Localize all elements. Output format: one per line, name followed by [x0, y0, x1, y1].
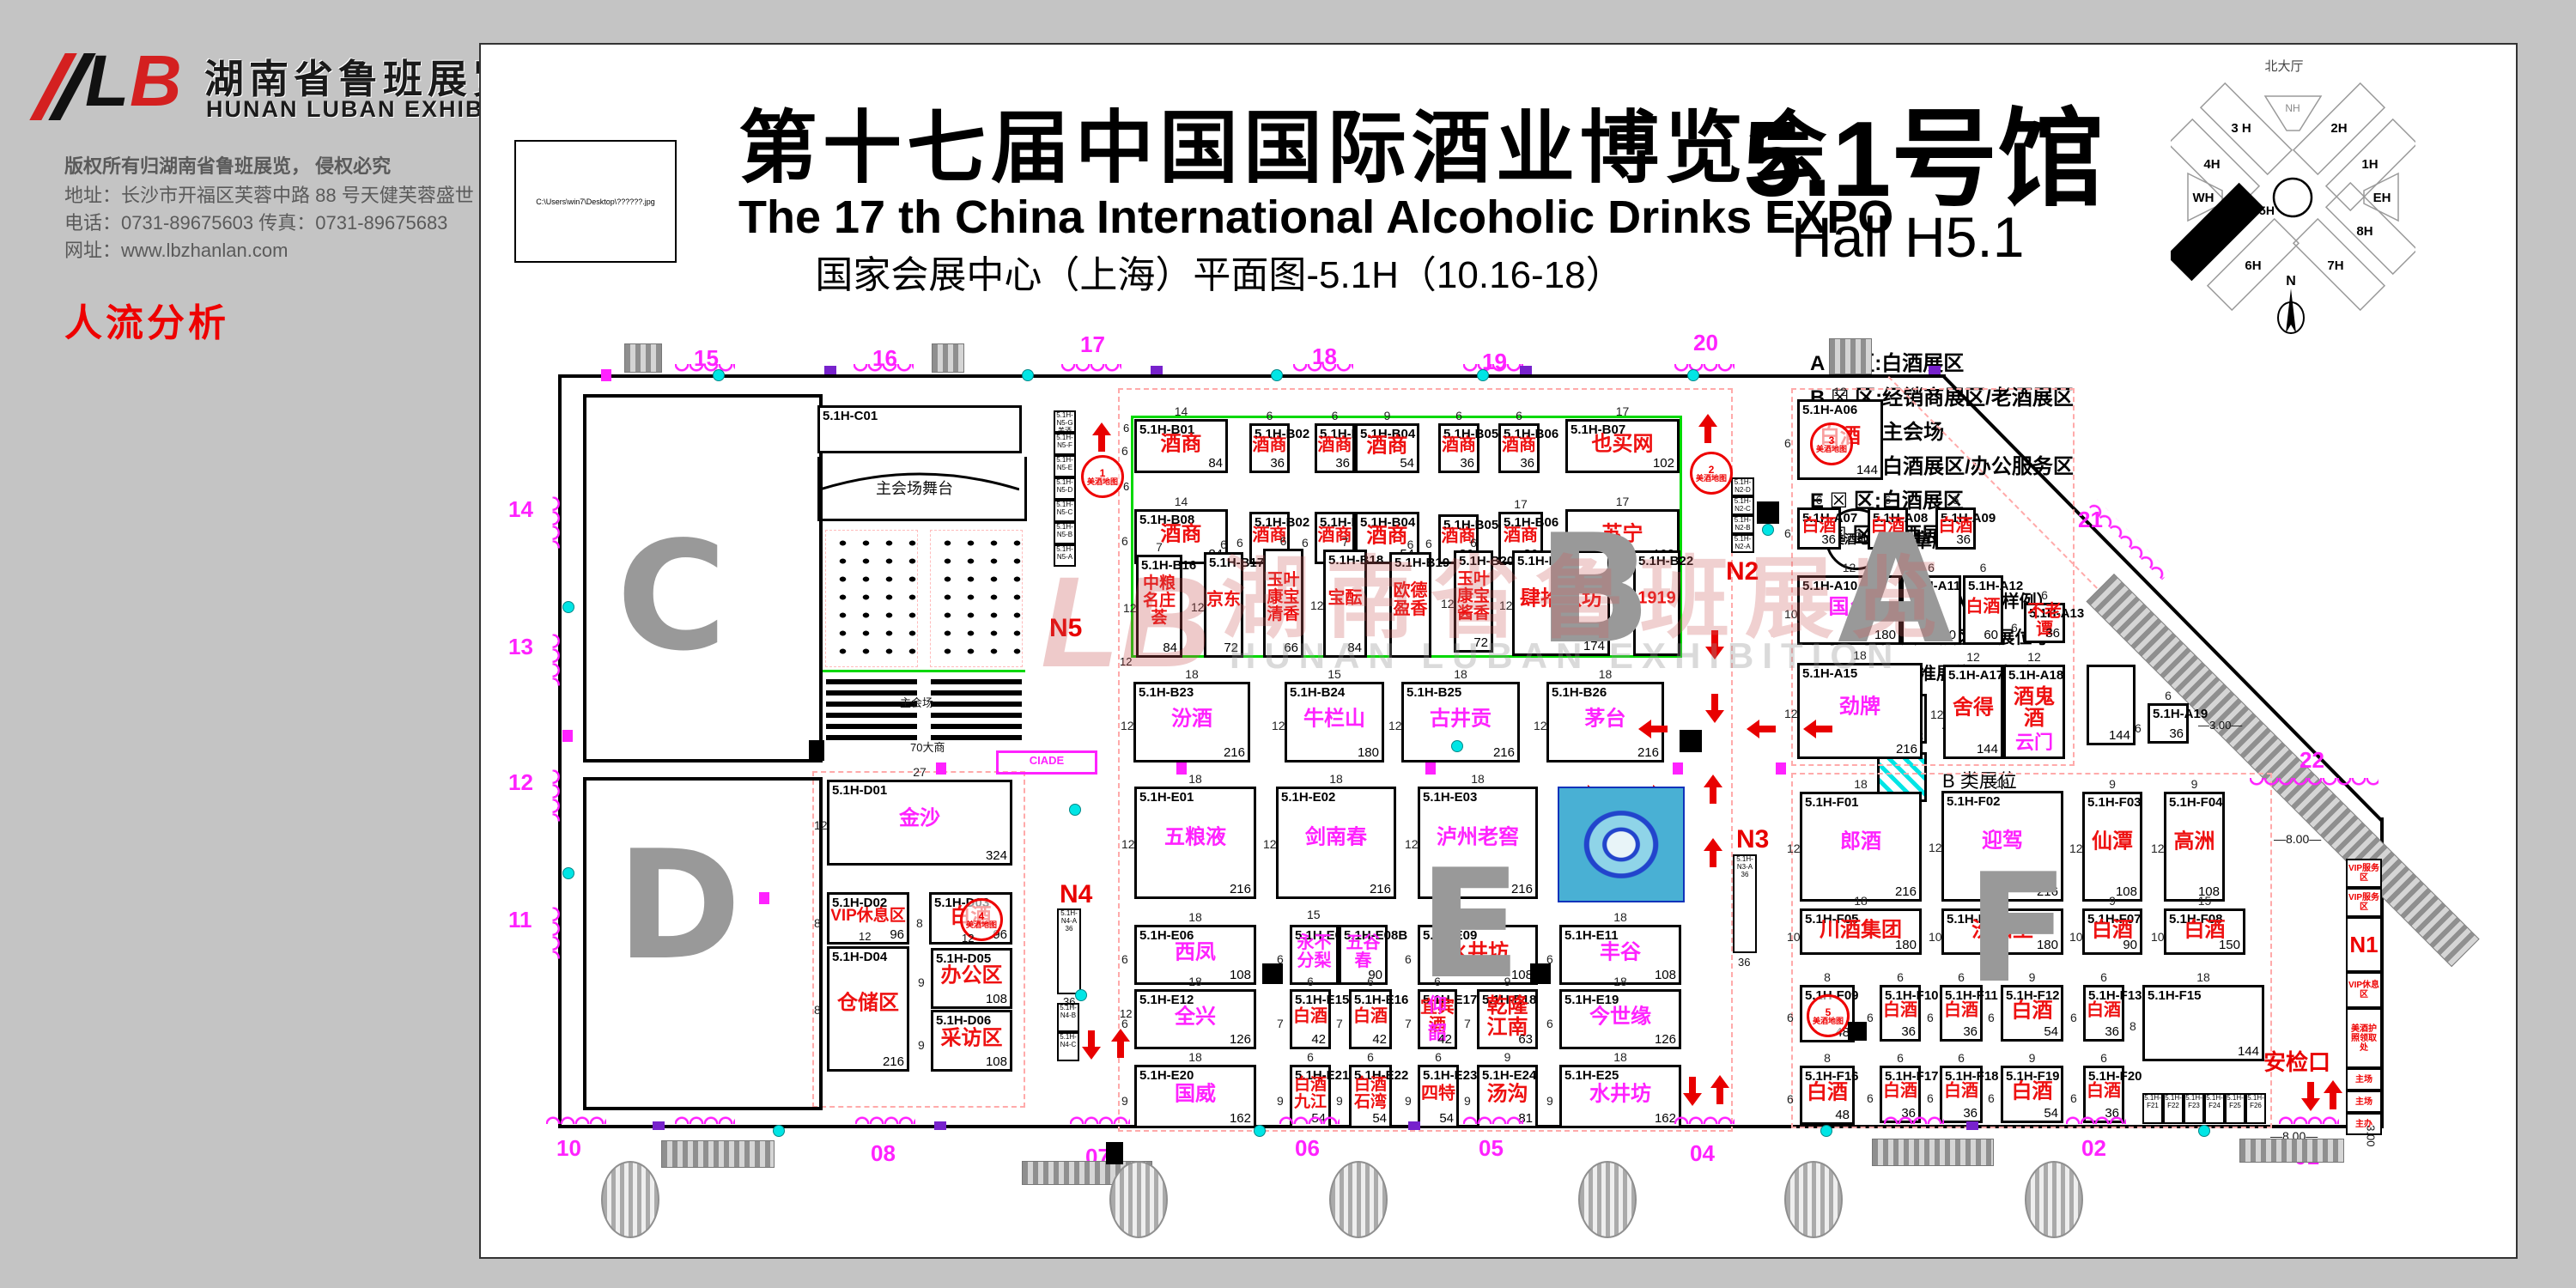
- label-13: 13: [508, 635, 533, 659]
- booth-name: 酒鬼酒: [2006, 686, 2063, 729]
- standard-booth-cell: 5.1H-N2-C: [1731, 496, 1754, 515]
- booth-dim-left: 7: [1277, 1017, 1284, 1030]
- booth-5.1H-B17: 5.1H-B17京东72612: [1204, 552, 1243, 658]
- facility-oval: [2025, 1161, 2083, 1238]
- hall-5h-label: 5H: [2259, 204, 2275, 217]
- arrow-head: [2324, 1080, 2342, 1093]
- booth-dim-top: 6: [1206, 538, 1241, 551]
- zone-letter-A: A: [1838, 515, 1953, 665]
- booth-5.1H-D05: 5.1H-D05办公区1089: [931, 948, 1012, 1009]
- booth-id: 5.1H-E03: [1423, 790, 1477, 805]
- booth-dim-left: 12: [2069, 841, 2083, 855]
- booth-name: 白酒: [1882, 1002, 1918, 1020]
- label-N5: N5: [1049, 615, 1082, 642]
- booth-dim-top: 6: [1266, 534, 1301, 548]
- booth-dim-left: 6: [1787, 1011, 1794, 1024]
- booth-name: 劲牌: [1800, 696, 1920, 717]
- booth-area: 36: [1963, 1106, 1978, 1121]
- booth-name: 玉叶康宝酱香: [1456, 571, 1491, 623]
- booth-dim-top: 14: [1137, 404, 1225, 418]
- gate-arcs-top: [854, 364, 914, 375]
- nh-label: NH: [2285, 102, 2300, 114]
- label-N4: N4: [1060, 881, 1092, 908]
- hall-6h-label: 6H: [2245, 258, 2261, 273]
- booth-dim-left: 12: [2151, 841, 2165, 855]
- arrow-shaft: [1815, 726, 1832, 732]
- booth-name: 白酒: [1882, 1083, 1918, 1101]
- label-05: 05: [1479, 1137, 1504, 1160]
- booth-name: 剑南春: [1279, 827, 1394, 848]
- arrow-head: [1082, 1047, 1101, 1060]
- booth-5.1H-F19: 5.1H-F19白酒5496: [2001, 1066, 2063, 1123]
- marker-dot-cyan: [1477, 369, 1489, 381]
- arrow-shaft: [1711, 630, 1718, 647]
- booth-area: 216: [1230, 882, 1251, 896]
- booth-dim-top: 18: [1562, 975, 1679, 988]
- flow-arrow-up: [1710, 1075, 1729, 1106]
- gate-arcs-top: [1674, 364, 1735, 375]
- booth-name: 白酒: [1942, 1083, 1980, 1101]
- booth-dim-left: 9: [1277, 1094, 1284, 1108]
- booth-dim-left: 12: [1121, 719, 1134, 732]
- label-12: 12: [1120, 656, 1132, 668]
- booth-5.1H-E22: 5.1H-E22白酒 石湾5469: [1349, 1065, 1392, 1128]
- marker-purple: [1151, 366, 1163, 374]
- booth-dim-top: 8: [1802, 970, 1852, 984]
- booth-dim-top: 6: [1942, 1051, 1980, 1065]
- label-3.00: 3.00: [2365, 1125, 2377, 1146]
- booth-id: 5.1H-C01: [823, 409, 878, 423]
- booth-dim-left: 8: [814, 1003, 821, 1017]
- standard-booth-cell: 5.1H-F24: [2204, 1093, 2225, 1124]
- arrow-shaft: [1711, 694, 1718, 711]
- address-line: 地址：长沙市开福区芙蓉中路 88 号天健芙蓉盛世 2301 室: [64, 180, 545, 208]
- booth-area: 216: [1493, 745, 1515, 760]
- facility-block: [1829, 338, 1872, 374]
- booth-5.1H-A19: 5.1H-A193666: [2148, 703, 2189, 744]
- booth-id: 5.1H-A12: [1968, 579, 2023, 593]
- booth-area: 216: [1224, 745, 1245, 760]
- booth-dim-top: 15: [2166, 894, 2243, 908]
- hall-eh-label: EH: [2373, 191, 2391, 205]
- booth-id: 5.1H-F02: [1947, 794, 2001, 809]
- hall-2h-label: 2H: [2330, 121, 2347, 136]
- zone-letter-F: F: [1966, 854, 2069, 1005]
- booth-area: 102: [1653, 456, 1674, 471]
- booth-dim-left: 9: [1464, 1094, 1471, 1108]
- label-04: 04: [1690, 1142, 1715, 1165]
- booth-5.1H-E16: 5.1H-E16白酒4267: [1349, 989, 1392, 1049]
- booth-dim-top: 18: [1137, 1050, 1254, 1064]
- standard-booth-cell: 5.1H-N4-A 36: [1057, 908, 1081, 994]
- facility-block: [624, 343, 662, 373]
- booth-id: 5.1H-E24: [1482, 1068, 1536, 1083]
- booth-name: 办公区: [933, 965, 1010, 987]
- booth-dim-top: 6: [1292, 1050, 1328, 1064]
- gate-arcs-left: [553, 770, 564, 822]
- copyright-line: 版权所有归湖南省鲁班展览， 侵权必究: [64, 151, 391, 179]
- arrow-head: [1111, 1029, 1130, 1042]
- booth-id: 5.1H-B24: [1290, 685, 1345, 700]
- marker-dot-cyan: [562, 601, 574, 613]
- booth-dim-left: 10: [1784, 607, 1798, 621]
- flow-arrow-left: [1803, 720, 1834, 738]
- booth-dim-top: 6: [2086, 1051, 2122, 1065]
- flow-arrow-down: [1683, 1075, 1702, 1106]
- booth-area: 126: [1230, 1032, 1251, 1047]
- north-hall-label: 北大厅: [2264, 59, 2303, 74]
- booth-dim-left: 12: [1388, 719, 1402, 732]
- booth-id: 5.1H-E02: [1281, 790, 1335, 805]
- booth-5.1H-B01: 5.1H-B01酒商84146: [1134, 419, 1228, 473]
- booth-id: 5.1H-F03: [2087, 795, 2142, 810]
- booth-id: 5.1H-E23: [1423, 1068, 1477, 1083]
- booth-5.1H-B19: 5.1H-B19欧德盈香6: [1389, 552, 1431, 658]
- marker-dot-cyan: [1254, 1125, 1266, 1137]
- booth-5.1H-F03: 5.1H-F03仙潭108912: [2082, 792, 2142, 902]
- booth-area: 36: [1821, 532, 1836, 547]
- label-12: 12: [1120, 1008, 1132, 1020]
- zone-letter-E: E: [1419, 850, 1522, 1000]
- booth-id: 5.1H-A06: [1802, 403, 1857, 417]
- booth-dim-top: 27: [829, 765, 1010, 779]
- booth-dim-top: 18: [1137, 910, 1254, 924]
- booth-area: 54: [2044, 1024, 2058, 1039]
- booth-dim-top: 18: [1420, 772, 1535, 786]
- stamp-text: 美酒地图: [1087, 478, 1118, 486]
- booth-5.1H-B18: 5.1H-B18宝酝84712: [1323, 550, 1367, 658]
- facility-oval: [1784, 1161, 1843, 1238]
- booth-id: 5.1H-E25: [1564, 1068, 1619, 1083]
- gate-arcs-bottom: [1884, 1113, 1944, 1124]
- booth-dim-top: 6: [1420, 1050, 1456, 1064]
- booth-5.1H-A17: 5.1H-A17舍得1441212: [1943, 665, 2003, 759]
- booth-dim-left: 12: [1263, 837, 1277, 851]
- service-cell-VIP休息区: VIP休息区: [2346, 972, 2382, 1008]
- booth-5.1H-D06: 5.1H-D06采访区1089: [931, 1010, 1012, 1072]
- standard-booth-cell: 5.1H-N3-A 36: [1733, 854, 1757, 953]
- booth-id: 5.1H-B19: [1394, 556, 1449, 570]
- booth-dim-left: 12: [814, 818, 828, 832]
- booth-name: 五粮液: [1137, 827, 1254, 848]
- booth-name: 酒商: [1501, 437, 1537, 455]
- booth-name: VIP休息区: [829, 908, 907, 925]
- arrow-head: [1747, 720, 1759, 738]
- booth-id: 5.1H-A17: [1948, 668, 2003, 683]
- flow-arrow-up: [1704, 838, 1722, 869]
- standard-booth-cell: 5.1H-N4-C: [1057, 1032, 1079, 1061]
- stamp-number: 5: [1826, 1007, 1832, 1018]
- booth-dim-left: 6: [1302, 536, 1309, 550]
- booth-dim-left: 9: [1336, 1094, 1343, 1108]
- booth-dim-left: 10: [1929, 930, 1942, 944]
- booth-dim-left: 6: [2135, 721, 2142, 735]
- label-N3: N3: [1736, 826, 1769, 854]
- expo-title-en: The 17 th China International Alcoholic …: [738, 191, 1700, 244]
- booth-5.1H-E19: 5.1H-E19今世缘126186: [1559, 989, 1681, 1049]
- stamp-number: 2: [1709, 465, 1715, 475]
- flow-arrow-up: [1111, 1029, 1130, 1060]
- booth-dim-top: 18: [1136, 667, 1248, 681]
- svg-text:N: N: [2286, 274, 2296, 289]
- standard-booth-cell: 5.1H-N5-C: [1054, 500, 1076, 522]
- booth-name: 丰谷: [1562, 941, 1679, 963]
- booth-5.1H-B07: 5.1H-B07也买网10217: [1565, 419, 1680, 473]
- gate-arcs-top: [1061, 364, 1121, 375]
- gate-arcs-top: [1293, 364, 1353, 375]
- audience-tables-left: [826, 678, 917, 740]
- marker-magenta: [759, 892, 769, 904]
- label-11: 11: [508, 908, 532, 932]
- booth-name: 白酒: [2003, 1081, 2061, 1103]
- booth-name: 白酒: [2086, 1083, 2122, 1101]
- stamp-number: 1: [1100, 468, 1106, 478]
- facility-block: [932, 343, 964, 373]
- booth-area: 54: [1372, 1111, 1387, 1126]
- booth-name: 四特: [1420, 1084, 1456, 1103]
- booth-name: 五谷春: [1341, 934, 1385, 970]
- hall-7h-label: 7H: [2327, 258, 2343, 273]
- marker-dot-cyan: [1075, 989, 1087, 1001]
- booth-area: 36: [1520, 456, 1534, 471]
- booth-玉叶康宝清香: 玉叶康宝清香666: [1263, 549, 1303, 658]
- booth-dim-left: 7: [1336, 1017, 1343, 1030]
- hall-8h-label: 8H: [2356, 224, 2372, 239]
- marker-dot-cyan: [713, 369, 725, 381]
- marker-dot-cyan: [1271, 369, 1283, 381]
- booth-dim-top: 9: [2085, 894, 2140, 908]
- marker-dot-cyan: [1687, 369, 1699, 381]
- booth-name: 酒商: [1441, 437, 1477, 455]
- booth-dim-top: 9: [1358, 409, 1417, 422]
- arrow-shaft: [1710, 787, 1716, 804]
- booth-name: 今世缘: [1562, 1005, 1679, 1027]
- booth-area: 96: [890, 927, 904, 942]
- booth-dim-left: 10: [2069, 930, 2083, 944]
- booth-5.1H-F07: 5.1H-F07白酒90910: [2082, 908, 2142, 955]
- audience-chairs-left: [826, 531, 917, 666]
- arrow-head: [1704, 775, 1722, 787]
- booth-dim-top: 6: [2086, 970, 2122, 984]
- booth-dim-left: 12: [1405, 837, 1419, 851]
- booth-dim-top: 6: [1317, 409, 1352, 422]
- booth-area: 216: [1896, 742, 1917, 756]
- stamp-circle-3: 3美酒地图: [1810, 422, 1853, 465]
- booth-area: 36: [1901, 1024, 1916, 1039]
- arrow-shaft: [2307, 1082, 2314, 1099]
- booth-dim-top: 9: [2166, 777, 2222, 791]
- booth-dim-top: 9: [2003, 1051, 2061, 1065]
- booth-area: 54: [2044, 1106, 2058, 1121]
- marker-dot-cyan: [1451, 740, 1463, 752]
- logo-letter-b: B: [130, 39, 182, 123]
- booth-dim-left: 6: [1867, 1011, 1874, 1024]
- standard-booth-cell: 5.1H-N5-G 美酒地图: [1054, 410, 1076, 433]
- gate-arcs-bottom: [2066, 1113, 2126, 1124]
- booth-dim-left: 6: [1121, 534, 1128, 548]
- booth-id: 5.1H-D01: [832, 783, 887, 798]
- booth-id: 5.1H-B16: [1141, 558, 1196, 573]
- booth-name-2: 云门: [2006, 727, 2063, 755]
- arrow-head: [1092, 422, 1111, 435]
- booth-5.1H-A13: 5.1H-A13不老谭3666: [2024, 603, 2065, 643]
- label-15: 15: [1307, 908, 1321, 921]
- standard-booth-cell: 5.1H-N2-A: [1731, 534, 1754, 553]
- booth-dim-top: 6: [1392, 538, 1429, 551]
- booth-area: 216: [1370, 882, 1391, 896]
- marker-dot-cyan: [1820, 1125, 1832, 1137]
- booth-5.1H-E20: 5.1H-E20国威162189: [1134, 1065, 1256, 1128]
- booth-5.1H-F18: 5.1H-F18白酒3666: [1940, 1066, 1983, 1123]
- booth-dim-left: 6: [1546, 1017, 1553, 1030]
- marker-purple: [1408, 1121, 1420, 1130]
- stamp-text: 美酒地图: [966, 921, 997, 929]
- label-12: 12: [962, 933, 974, 945]
- logo-letter-l: L: [85, 39, 129, 123]
- booth-id: 5.1H-F15: [2148, 988, 2202, 1003]
- booth-dim-left: 6: [1927, 1011, 1934, 1024]
- booth-name: 白酒 石湾: [1352, 1077, 1389, 1111]
- booth-5.1H-B04: 5.1H-B04酒商549: [1355, 423, 1419, 473]
- standard-booth-cell: 5.1H-F21: [2142, 1093, 2163, 1124]
- booth-area: 48: [1835, 1108, 1850, 1122]
- hall-3h-label: 3 H: [2231, 121, 2251, 136]
- booth-name: 汾酒: [1136, 708, 1248, 729]
- facility-block: [2239, 1139, 2344, 1163]
- booth-name: 采访区: [933, 1027, 1010, 1048]
- flow-arrow-down: [1705, 629, 1724, 659]
- service-kiosk: [1106, 1142, 1123, 1164]
- service-kiosk: [1757, 501, 1779, 524]
- booth-dim-top: 14: [1137, 495, 1225, 508]
- arrow-head: [1683, 1093, 1702, 1106]
- booth-dim-left: 12: [1123, 601, 1137, 615]
- marker-dot-cyan: [773, 1125, 785, 1137]
- booth-dim-top: 6: [2026, 588, 2063, 602]
- flow-arrow-left: [1747, 720, 1777, 738]
- gate-arcs-bottom: [1674, 1113, 1735, 1124]
- booth-dim-left: 7: [1405, 1017, 1412, 1030]
- booth-id: 5.1H-E01: [1139, 790, 1194, 805]
- marker-purple: [1966, 1121, 1978, 1130]
- booth-5.1H-B16: 5.1H-B16中粮名庄荟84712: [1136, 555, 1182, 658]
- standard-booth-cell: 5.1H-N2-D: [1731, 477, 1754, 496]
- booth-name: 郎酒: [1802, 830, 1919, 852]
- booth-dim-top: 6: [1882, 1051, 1918, 1065]
- booth-id: 5.1H-E15: [1295, 993, 1349, 1007]
- zone-letter-D: D: [617, 831, 741, 981]
- hall-number-cn: 5.1号馆: [1743, 72, 2104, 227]
- booth-dim-left: 12: [1930, 708, 1944, 721]
- booth-name: 欧德盈香: [1392, 582, 1429, 618]
- arrow-shaft: [1710, 850, 1716, 867]
- label-主会场舞台: 主会场舞台: [876, 481, 953, 497]
- booth-dim-top: 6: [1965, 561, 2001, 574]
- booth-area: 144: [1856, 463, 1878, 477]
- booth-dim-top: 6: [1352, 975, 1389, 988]
- booth-name: 京东: [1206, 591, 1241, 609]
- expo-title-cn: 第十七届中国国际酒业博览会: [738, 84, 1700, 198]
- booth-5.1H-A07: 5.1H-A07白酒3666: [1797, 507, 1841, 550]
- booth-dim-top: 6: [1882, 970, 1918, 984]
- booth-dim-left: 6: [1787, 1092, 1794, 1106]
- stamp-text: 美酒地图: [1696, 475, 1727, 483]
- compass-icon: N: [2278, 274, 2304, 333]
- arrow-shaft: [1088, 1030, 1095, 1048]
- facility-block: [1872, 1139, 1994, 1166]
- stamp-circle-2: 2美酒地图: [1690, 452, 1733, 495]
- arrow-shaft: [1117, 1041, 1124, 1058]
- booth-5.1H-E15: 5.1H-E15白酒4267: [1290, 989, 1331, 1049]
- booth-dim-top: 18: [2145, 970, 2262, 984]
- gate-arcs-bottom: [2279, 1113, 2339, 1124]
- booth-name: 也买网: [1568, 433, 1677, 454]
- label-70大商: 70大商: [910, 742, 945, 754]
- booth-area: 180: [1358, 745, 1379, 760]
- service-kiosk: [1848, 1022, 1867, 1041]
- marker-purple: [1929, 366, 1941, 374]
- booth-id: 5.1H-B26: [1552, 685, 1607, 700]
- booth-dim-left: 6: [1121, 952, 1128, 966]
- booth-5.1H-D01: 5.1H-D01金沙3242712: [827, 780, 1012, 866]
- aerial-photo-booth: [1558, 787, 1685, 902]
- booth-name: 白酒: [1292, 1007, 1328, 1025]
- standard-booth-cell: 5.1H-N5-B: [1054, 522, 1076, 544]
- booth-5.1H-B23: 5.1H-B23汾酒2161812: [1133, 682, 1250, 762]
- stamp-circle-1: 1美酒地图: [1081, 455, 1124, 498]
- label-06: 06: [1295, 1137, 1320, 1160]
- booth-name: 酒商: [1137, 433, 1225, 454]
- booth-dim-top: 18: [1562, 910, 1679, 924]
- label-—3.00—: —3.00—: [2198, 720, 2242, 732]
- booth-dim-top: 6: [1252, 409, 1287, 422]
- label-22: 22: [2300, 749, 2324, 772]
- booth-area: 108: [986, 992, 1007, 1006]
- booth-area: 36: [1270, 456, 1285, 471]
- service-kiosk: [1680, 730, 1702, 752]
- booth-dim-left: 6: [1927, 1091, 1934, 1105]
- arrow-head: [1705, 647, 1724, 659]
- booth-area: 144: [1977, 742, 1998, 756]
- booth-dim-left: 6: [1784, 526, 1791, 540]
- booth-dim-top: 6: [2150, 689, 2186, 702]
- booth-id: 5.1H-B17: [1209, 556, 1264, 570]
- booth-dim-left: 6: [2011, 621, 2018, 635]
- booth-id: 5.1H-B23: [1139, 685, 1194, 700]
- standard-booth-cell: 5.1H-N2-B: [1731, 515, 1754, 534]
- booth-5.1H-D04: 5.1H-D04仓储区2168: [827, 946, 909, 1072]
- stamp-circle-5: 5美酒地图: [1807, 994, 1850, 1037]
- label-N2: N2: [1726, 558, 1759, 586]
- booth-dim-left: 9: [1546, 1094, 1553, 1108]
- phone-line: 电话：0731-89675603 传真：0731-89675683: [64, 208, 447, 235]
- service-cell-VIP服务区: VIP服务区: [2346, 888, 2382, 917]
- booth-dim-top: 6: [1800, 493, 1838, 507]
- gate-arcs-top: [1463, 364, 1523, 375]
- arrow-shaft: [1650, 726, 1668, 732]
- booth-dim-left: 8: [814, 916, 821, 930]
- gate-arcs-bottom: [546, 1113, 606, 1124]
- booth-dim-top: 18: [1404, 667, 1517, 681]
- booth-dim-left: 12: [1272, 719, 1285, 732]
- arrow-head: [1638, 720, 1651, 738]
- service-cell-N1: N1: [2346, 917, 2382, 972]
- gate-arcs-bottom: [1070, 1113, 1130, 1124]
- booth-dim-left: 12: [1191, 600, 1205, 614]
- service-kiosk: [1530, 963, 1551, 984]
- booth-5.1H-F08: 5.1H-F08白酒1501510: [2164, 908, 2245, 955]
- hall-wall-left: [558, 374, 562, 1128]
